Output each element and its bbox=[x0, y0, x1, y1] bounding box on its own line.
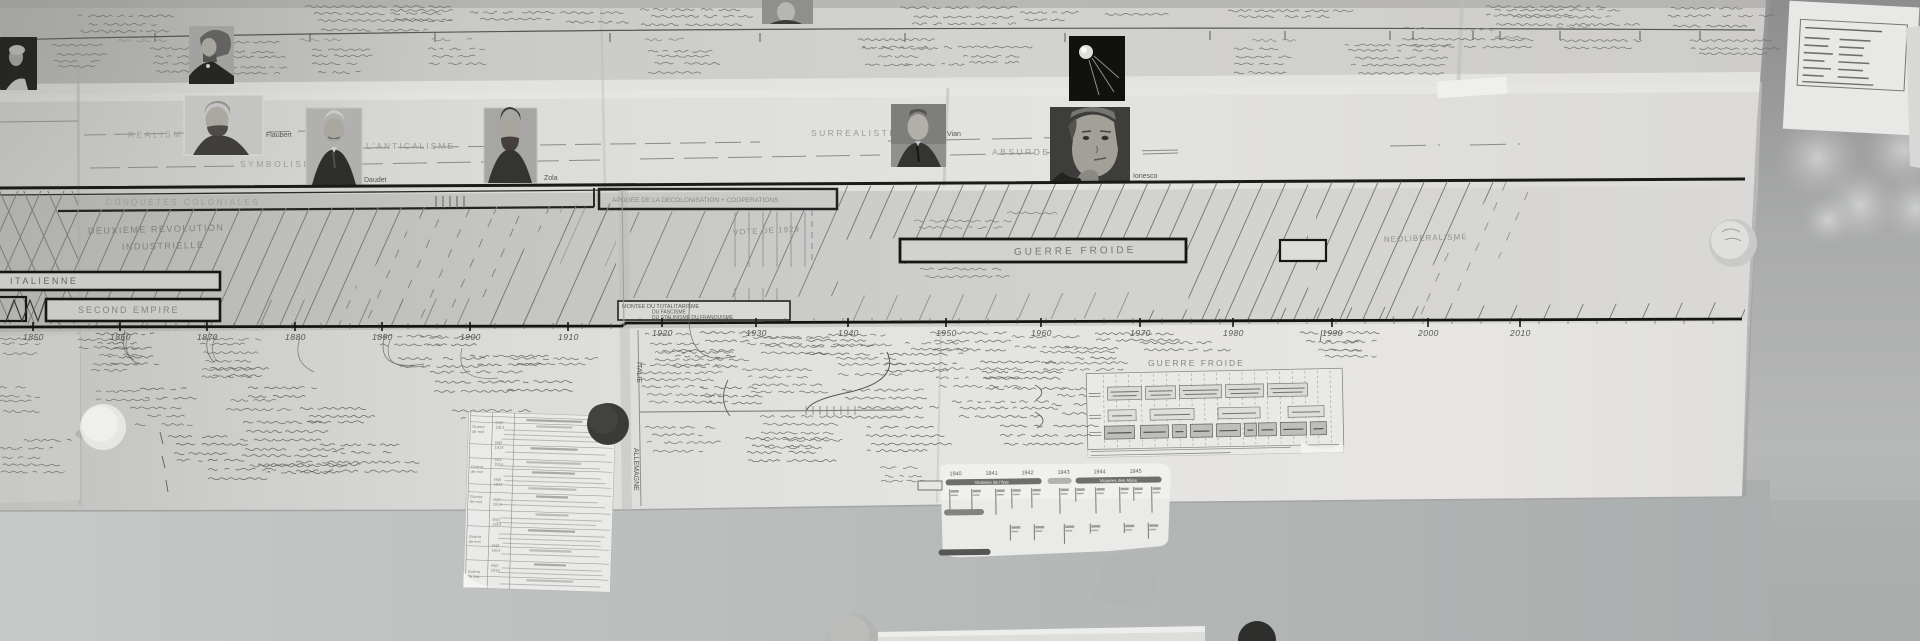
svg-text:ITALIENNE: ITALIENNE bbox=[10, 276, 78, 286]
svg-text:1940: 1940 bbox=[838, 328, 859, 338]
svg-text:de mvt: de mvt bbox=[471, 469, 484, 474]
svg-text:1900: 1900 bbox=[460, 332, 481, 342]
svg-text:1941: 1941 bbox=[985, 471, 997, 477]
svg-text:Victoires des Allies: Victoires des Allies bbox=[1100, 478, 1138, 484]
svg-text:1942: 1942 bbox=[1021, 470, 1033, 476]
svg-text:ABSURDE: ABSURDE bbox=[992, 147, 1051, 157]
svg-text:ITALIE: ITALIE bbox=[635, 362, 642, 383]
svg-text:Zola: Zola bbox=[544, 175, 558, 182]
svg-text:Victoires de l'Axe: Victoires de l'Axe bbox=[975, 480, 1010, 485]
svg-text:1950: 1950 bbox=[936, 328, 957, 338]
svg-text:GUERRE FROIDE: GUERRE FROIDE bbox=[1014, 245, 1137, 258]
svg-text:1944: 1944 bbox=[1093, 469, 1105, 475]
svg-text:1940: 1940 bbox=[949, 471, 961, 477]
svg-text:de mvt: de mvt bbox=[472, 429, 485, 434]
svg-text:SECOND EMPIRE: SECOND EMPIRE bbox=[78, 305, 180, 315]
svg-text:1910: 1910 bbox=[558, 332, 579, 342]
svg-text:DU STALINISME DU FRANQUISME: DU STALINISME DU FRANQUISME bbox=[652, 315, 734, 321]
svg-text:Daudet: Daudet bbox=[364, 177, 387, 184]
svg-text:1914: 1914 bbox=[493, 502, 503, 507]
svg-text:Flaubert: Flaubert bbox=[266, 132, 292, 139]
svg-text:2010: 2010 bbox=[1509, 328, 1531, 338]
svg-text:CONQUETES COLONIALES: CONQUETES COLONIALES bbox=[106, 198, 260, 207]
svg-text:1914: 1914 bbox=[493, 482, 503, 487]
svg-text:1970: 1970 bbox=[1130, 328, 1151, 338]
svg-text:1914: 1914 bbox=[494, 462, 504, 467]
svg-text:Ionesco: Ionesco bbox=[1133, 173, 1158, 180]
svg-text:de mvt: de mvt bbox=[469, 539, 482, 544]
svg-text:1980: 1980 bbox=[1223, 328, 1244, 338]
svg-text:1914: 1914 bbox=[491, 547, 501, 552]
svg-text:1880: 1880 bbox=[285, 332, 306, 342]
svg-text:1914: 1914 bbox=[492, 522, 502, 527]
svg-text:1943: 1943 bbox=[1057, 470, 1069, 476]
svg-text:1945: 1945 bbox=[1129, 469, 1141, 475]
svg-text:2000: 2000 bbox=[1417, 328, 1439, 338]
svg-text:Vian: Vian bbox=[947, 131, 961, 138]
svg-text:GUERRE FROIDE: GUERRE FROIDE bbox=[1148, 358, 1245, 368]
svg-text:L'ANTICALISME: L'ANTICALISME bbox=[366, 141, 455, 151]
svg-text:1914: 1914 bbox=[495, 445, 505, 450]
svg-text:de mvt: de mvt bbox=[470, 499, 483, 504]
svg-text:REALISME: REALISME bbox=[128, 129, 191, 140]
svg-text:ALLEMAGNE: ALLEMAGNE bbox=[632, 448, 639, 491]
svg-text:SURREALISTIE: SURREALISTIE bbox=[811, 128, 902, 138]
svg-text:1914: 1914 bbox=[495, 425, 505, 430]
svg-text:1930: 1930 bbox=[746, 328, 767, 338]
svg-text:1914: 1914 bbox=[491, 567, 501, 572]
svg-text:1850: 1850 bbox=[23, 332, 44, 342]
svg-text:APOGEE DE LA DECOLONISATION +: APOGEE DE LA DECOLONISATION + COOPERATIO… bbox=[612, 197, 779, 204]
